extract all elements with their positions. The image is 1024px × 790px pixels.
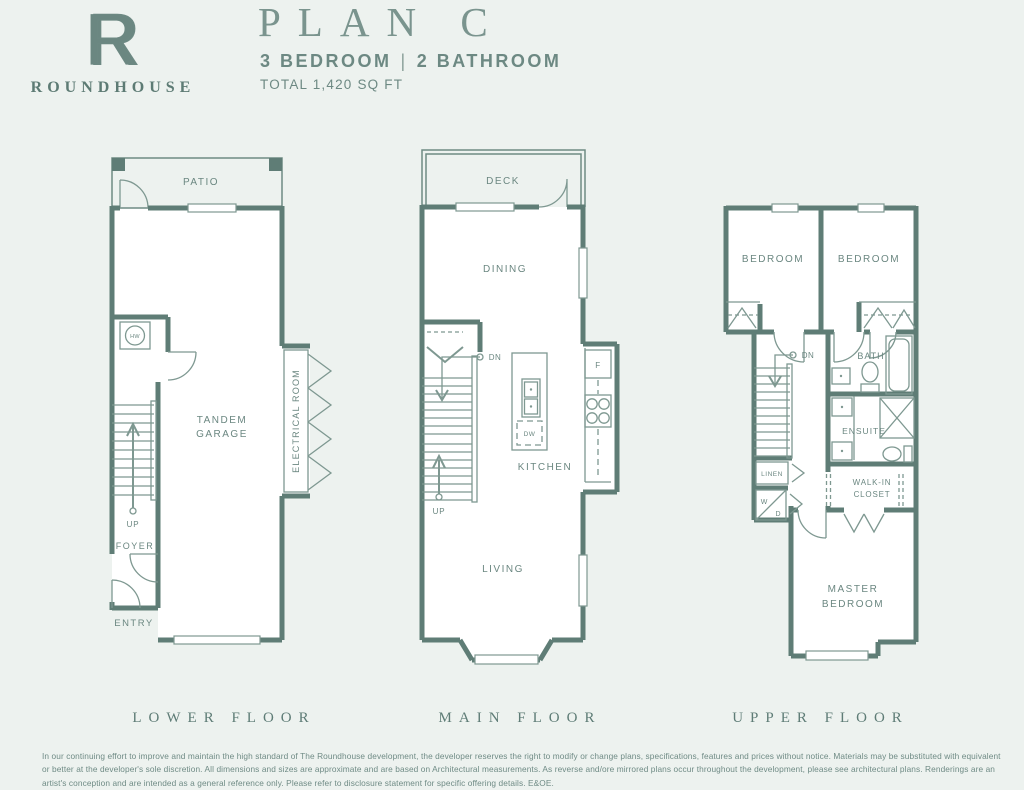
patio: PATIO	[112, 158, 282, 208]
disclaimer-text: In our continuing effort to improve and …	[42, 750, 1010, 790]
dn-label: DN	[489, 353, 502, 362]
upper-floor-plan: DN LINEN W D BATH ENSUITE	[718, 198, 923, 673]
entry-label: ENTRY	[114, 618, 154, 629]
washer-label: W	[761, 499, 768, 506]
foyer-label: FOYER	[116, 541, 155, 551]
bifold-doors	[308, 354, 331, 490]
plan-subtitle: 3 BEDROOM|2 BATHROOM	[260, 51, 561, 72]
deck-door-arc	[539, 179, 567, 207]
main-floor-plan: DECK DN UP DW	[415, 148, 625, 673]
living-label: LIVING	[482, 564, 524, 575]
brand-logo: R R ROUNDHOUSE	[28, 2, 198, 97]
hall-interior	[754, 332, 828, 520]
master-label-2: BEDROOM	[822, 599, 884, 610]
living-side-window	[579, 555, 587, 606]
electrical-room: ELECTRICAL ROOM	[284, 350, 331, 492]
master-label-1: MASTER	[828, 584, 879, 595]
linen-label: LINEN	[761, 471, 783, 478]
walkin-label-1: WALK-IN	[853, 478, 892, 487]
hw-label: HW	[130, 334, 140, 340]
bath-label: BATH	[857, 351, 884, 361]
master-window	[806, 651, 868, 660]
kitchen-label: KITCHEN	[518, 462, 572, 473]
up-label: UP	[127, 520, 140, 529]
bay-window	[475, 655, 538, 664]
garage-window	[188, 204, 236, 212]
garage-label-1: TANDEM	[197, 415, 247, 426]
bedroom1-label: BEDROOM	[742, 254, 804, 265]
brand-name: ROUNDHOUSE	[28, 79, 198, 97]
upper-floor-name: UPPER FLOOR	[718, 710, 923, 727]
dining-side-window	[579, 248, 587, 298]
subtitle-bathrooms: 2 BATHROOM	[417, 51, 562, 71]
patio-label: PATIO	[183, 177, 219, 188]
main-floor-name: MAIN FLOOR	[415, 710, 625, 727]
electrical-room-label: ELECTRICAL ROOM	[291, 369, 301, 473]
bedroom2-window	[858, 204, 884, 212]
dn-label: DN	[802, 351, 815, 360]
lower-floor-name: LOWER FLOOR	[104, 710, 344, 727]
deck-label: DECK	[486, 176, 520, 187]
bedroom1-window	[772, 204, 798, 212]
ensuite-label: ENSUITE	[842, 426, 886, 436]
up-label: UP	[433, 507, 446, 516]
garage-door	[174, 636, 260, 644]
logo-letter-echo: R	[85, 2, 137, 74]
dining-top-window	[456, 203, 514, 211]
fridge-label: F	[595, 361, 600, 370]
bedroom2-label: BEDROOM	[838, 254, 900, 265]
dining-label: DINING	[483, 264, 527, 275]
roundhouse-logo-icon: R R	[28, 2, 198, 74]
deck: DECK	[422, 150, 585, 207]
subtitle-divider: |	[401, 51, 408, 71]
garage-label-2: GARAGE	[196, 429, 248, 440]
master-interior	[791, 506, 916, 656]
walkin-label-2: CLOSET	[854, 490, 891, 499]
patio-door-arc	[120, 180, 148, 208]
plan-total-area: TOTAL 1,420 SQ FT	[260, 77, 403, 92]
dw-label: DW	[524, 431, 536, 438]
dryer-label: D	[775, 511, 780, 518]
subtitle-bedrooms: 3 BEDROOM	[260, 51, 392, 71]
lower-floor-plan: PATIO ELECTRICAL ROOM HW UP FOYER ENTR	[104, 150, 344, 675]
page-title: PLAN C	[258, 0, 505, 46]
